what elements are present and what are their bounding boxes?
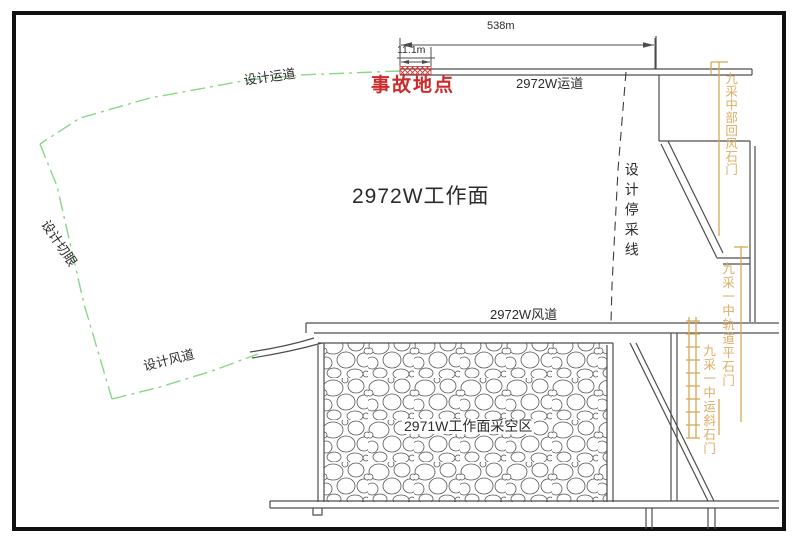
incline-crosscut-label: 九采一中运斜石门 [701, 344, 714, 456]
stop-mining-line-label: 设计停采线 [624, 162, 639, 262]
top-roadway-label: 2972W运道 [516, 77, 583, 91]
track-crosscut-line [734, 247, 748, 422]
face-label: 2972W工作面 [352, 186, 490, 208]
accident-location-label: 事故地点 [371, 76, 455, 96]
air-roadway-label: 2972W风道 [490, 308, 557, 322]
accident-width-dimension-label: 11.1m [397, 45, 425, 56]
return-air-crosscut-label: 九采中部回风石门 [723, 72, 736, 176]
right-development-roadways [656, 36, 755, 322]
accident-marker [400, 67, 431, 75]
goaf-label: 2971W工作面采空区 [402, 419, 534, 434]
bottom-roadway [270, 501, 779, 529]
dimension-538m [400, 38, 655, 69]
total-length-dimension-label: 538m [487, 21, 515, 33]
track-crosscut-label: 九采一中轨道平石门 [720, 262, 733, 388]
mine-map-canvas: 538m 11.1m 事故地点 2972W运道 设计运道 设计切眼 设计风道 2… [0, 0, 800, 541]
